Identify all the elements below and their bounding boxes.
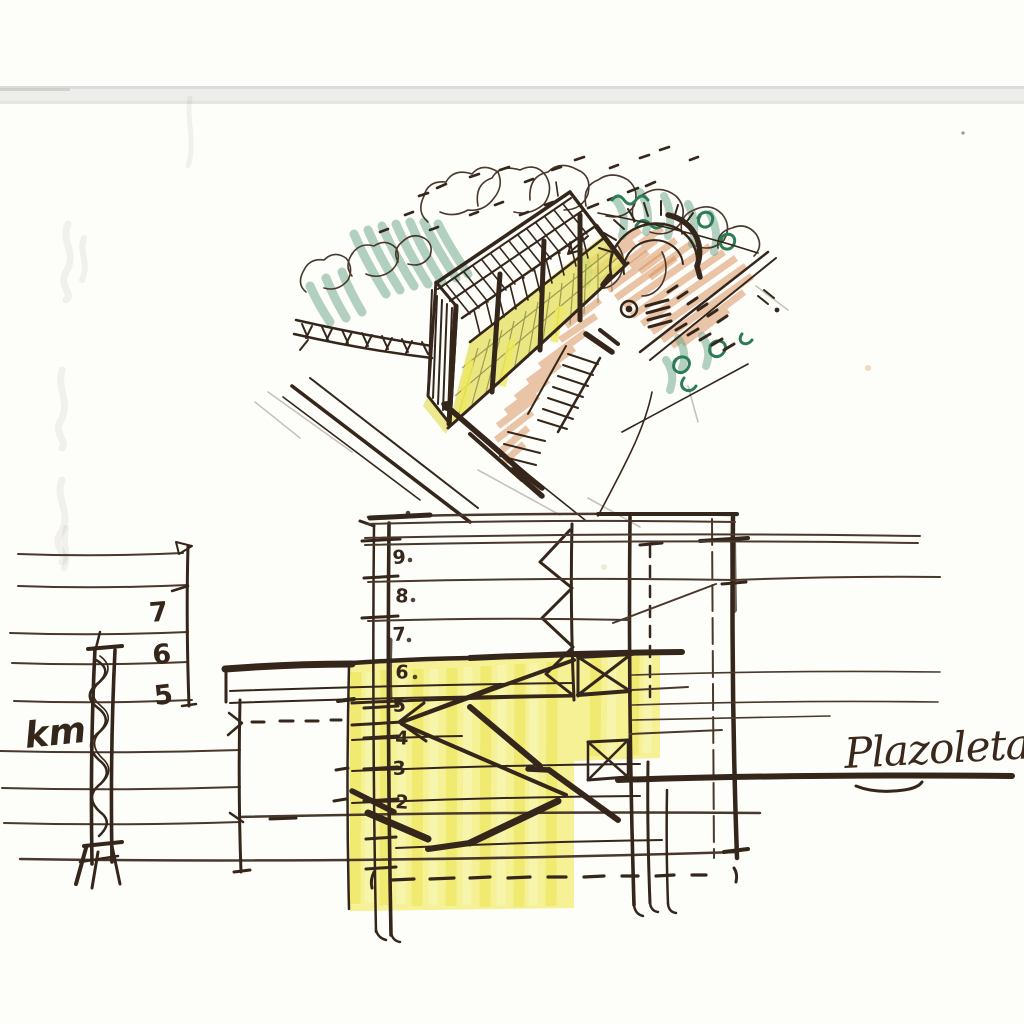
- datum-line: [228, 700, 341, 872]
- scanner-artifact-band: [0, 86, 1024, 104]
- ghost-bleedthrough-marks: [58, 98, 191, 568]
- ground-line: [618, 776, 1012, 792]
- left-level-label-7: 7: [148, 596, 169, 629]
- km-label: km: [23, 710, 88, 757]
- grid-level-label-9: 9: [392, 546, 407, 569]
- grid-level-label-7: 7: [392, 623, 406, 646]
- level-numbers-left: 7 6 5: [148, 596, 175, 712]
- sketch-page: 7 6 5 km: [0, 0, 1024, 1024]
- paper-specks: [601, 131, 965, 570]
- grid-level-label-6: 6: [395, 661, 410, 684]
- grid-level-label-8: 8: [395, 585, 409, 608]
- sketch-canvas: 7 6 5 km: [0, 0, 1024, 1024]
- grid-level-label-2: 2: [395, 791, 410, 814]
- truss-column: [76, 632, 122, 888]
- flag-pole: [172, 542, 196, 706]
- left-level-label-6: 6: [151, 639, 172, 671]
- grid-level-label-5: 5: [392, 694, 407, 717]
- left-level-label-5: 5: [152, 679, 174, 712]
- plazoleta-label: Plazoleta: [842, 719, 1024, 778]
